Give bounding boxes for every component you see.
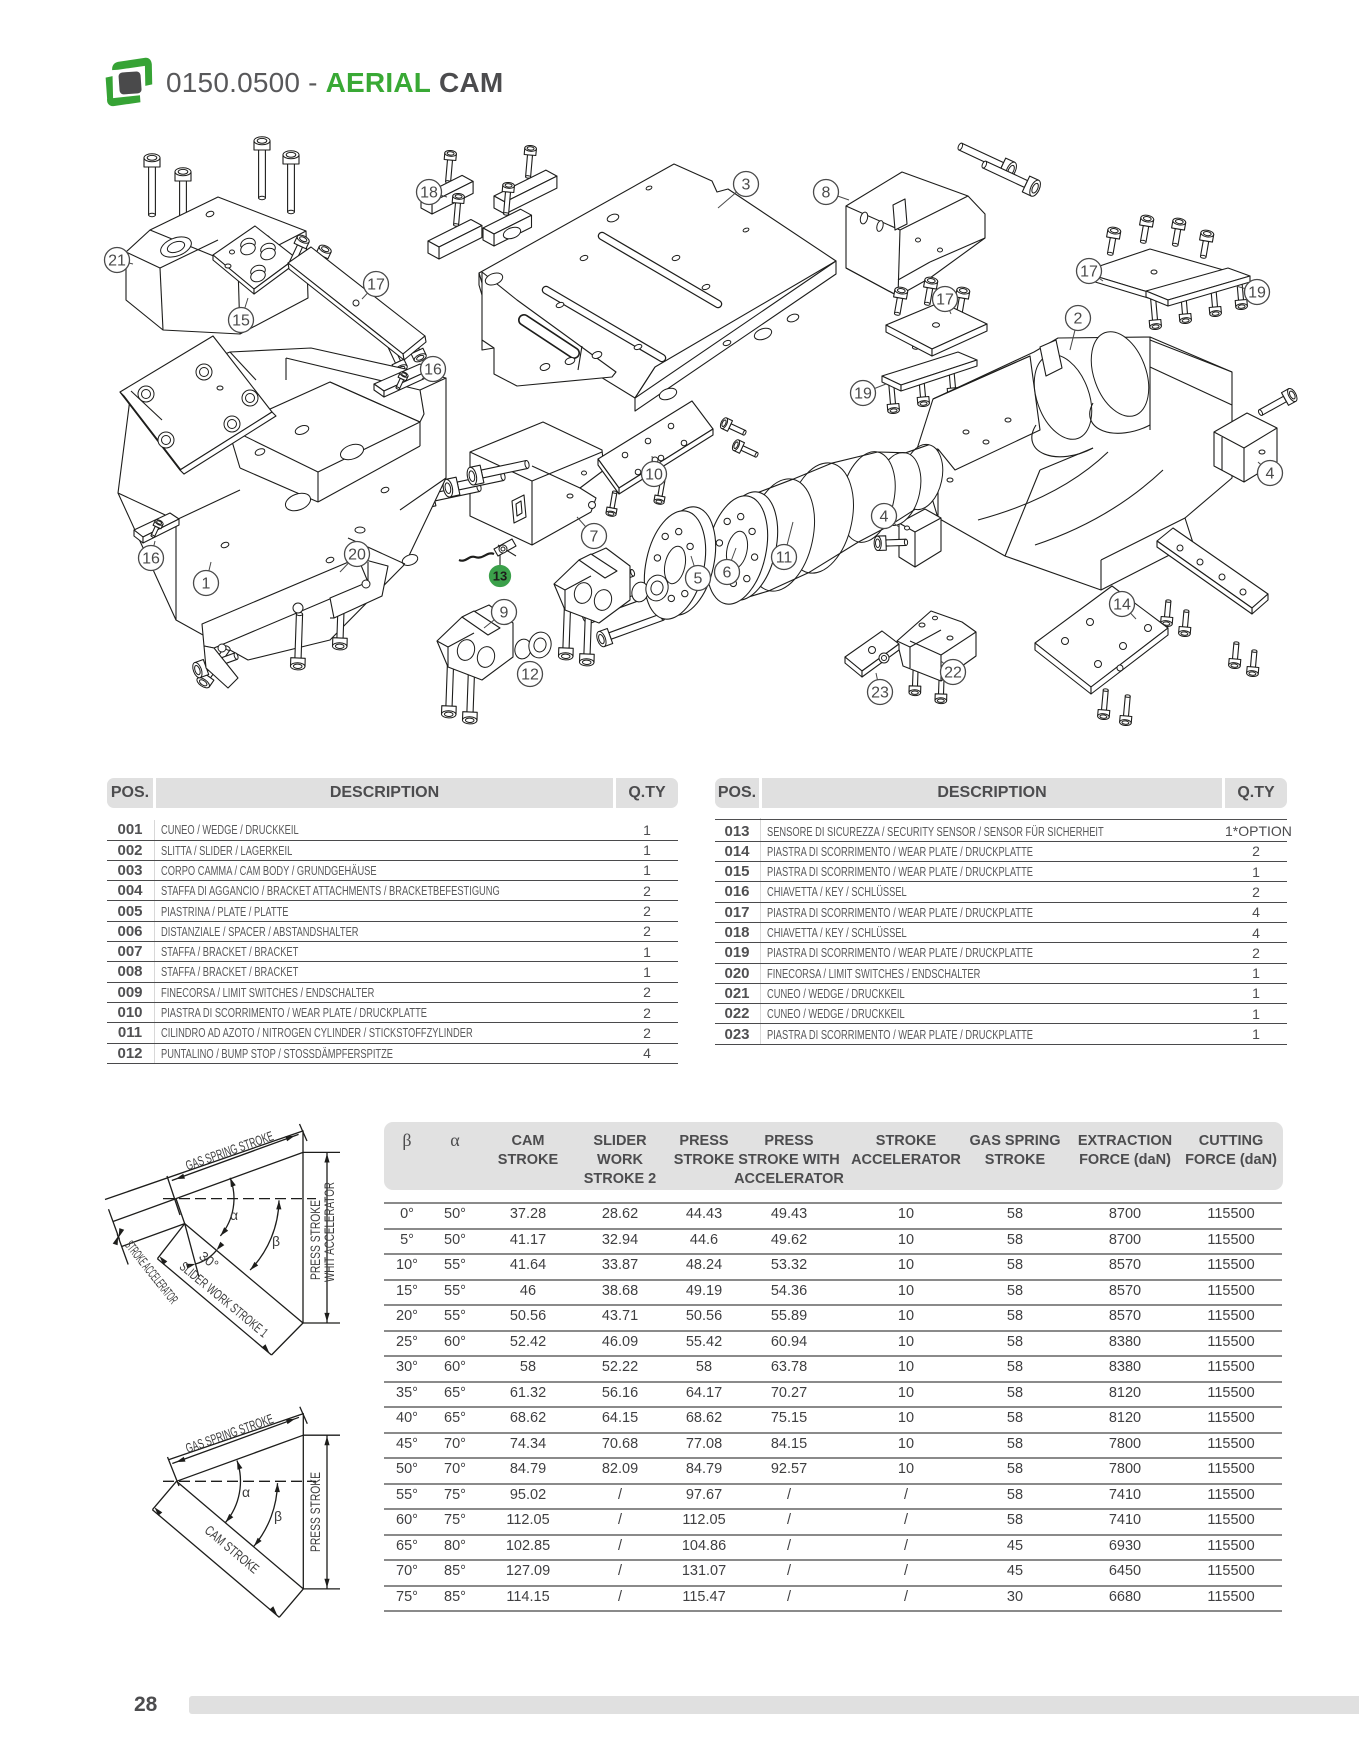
svg-text:STROKE ACCELERATOR: STROKE ACCELERATOR [122, 1238, 181, 1307]
svg-text:CAM STROKE: CAM STROKE [202, 1523, 262, 1577]
svg-text:PRESS STROKE: PRESS STROKE [308, 1200, 323, 1280]
svg-text:GAS SPRING STROKE: GAS SPRING STROKE [184, 1128, 276, 1173]
svg-text:SLIDER WORK STROKE 1: SLIDER WORK STROKE 1 [177, 1259, 271, 1341]
svg-text:β: β [272, 1233, 280, 1249]
svg-text:WHIT ACCELERATOR: WHIT ACCELERATOR [322, 1182, 337, 1282]
svg-text:GAS SPRING STROKE: GAS SPRING STROKE [184, 1411, 276, 1456]
svg-text:α: α [230, 1207, 238, 1223]
svg-text:α: α [242, 1484, 250, 1500]
svg-text:PRESS STROKE: PRESS STROKE [308, 1472, 323, 1552]
svg-text:β: β [274, 1508, 282, 1524]
